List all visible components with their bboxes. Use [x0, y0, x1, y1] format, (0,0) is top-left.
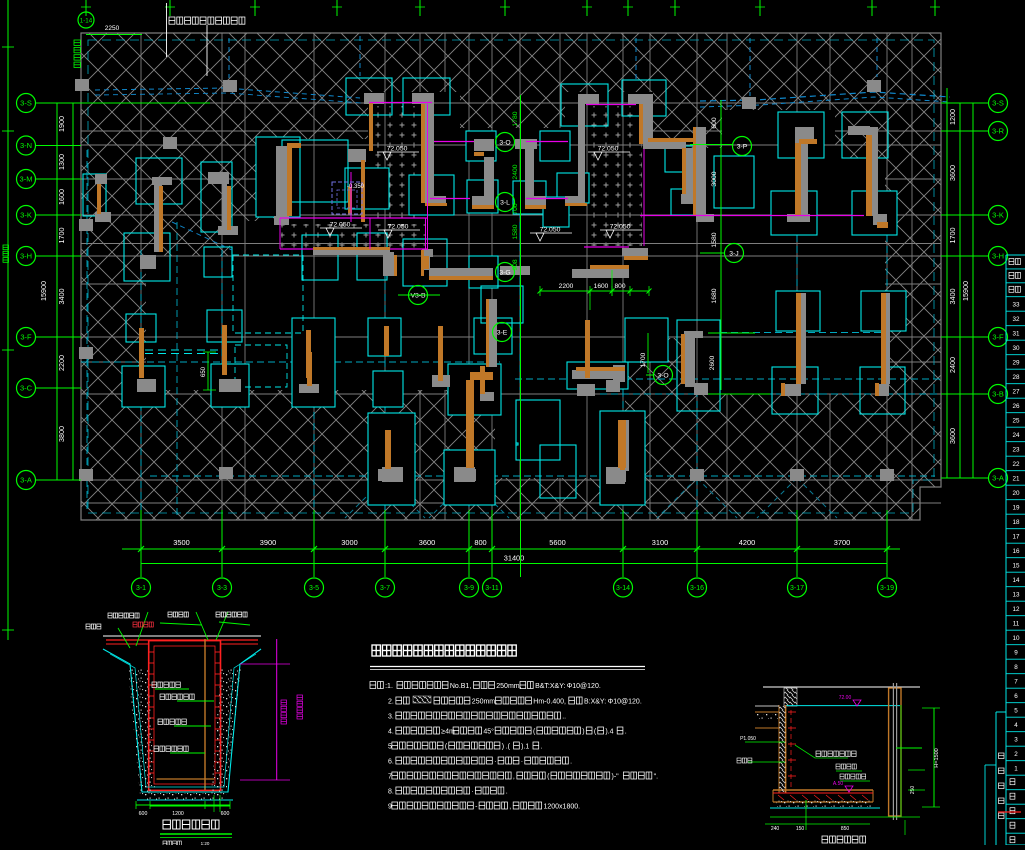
svg-text:150: 150	[796, 826, 805, 832]
svg-text:3-P: 3-P	[737, 144, 748, 151]
svg-text:3-B: 3-B	[992, 390, 1004, 399]
svg-text:23: 23	[1012, 447, 1020, 454]
svg-text:1580: 1580	[711, 232, 718, 247]
svg-text:3-N: 3-N	[20, 141, 32, 150]
svg-text:15900: 15900	[39, 281, 48, 301]
svg-text:Hm-0.400,: Hm-0.400,	[533, 699, 566, 706]
svg-text:3-9: 3-9	[464, 585, 474, 592]
svg-text:700: 700	[512, 203, 519, 215]
svg-text:72.050: 72.050	[330, 222, 351, 229]
svg-text:.(: .(	[506, 744, 511, 751]
svg-text:17: 17	[1012, 534, 1020, 541]
svg-text:3-7: 3-7	[380, 585, 390, 592]
svg-text:800: 800	[474, 538, 486, 547]
svg-text:32: 32	[1012, 316, 1020, 323]
svg-text:3400: 3400	[57, 289, 66, 305]
svg-text:3-G: 3-G	[499, 270, 510, 277]
svg-text:,: ,	[509, 804, 511, 811]
svg-text:).1: ).1	[521, 744, 529, 751]
svg-text:2250: 2250	[105, 25, 120, 32]
svg-text:1-14: 1-14	[80, 18, 93, 25]
svg-text:3-17: 3-17	[790, 585, 804, 592]
svg-text:27: 27	[1012, 389, 1020, 396]
svg-text:3-11: 3-11	[485, 585, 499, 592]
svg-text:1300: 1300	[57, 154, 66, 170]
svg-text:10: 10	[1012, 635, 1020, 642]
svg-text:2200: 2200	[559, 283, 574, 290]
svg-text:1: 1	[1014, 766, 1018, 773]
svg-text:31400: 31400	[504, 554, 525, 563]
svg-text:1600: 1600	[594, 283, 609, 290]
svg-text:3-5: 3-5	[309, 585, 319, 592]
svg-text:3700: 3700	[834, 538, 850, 547]
svg-text:2: 2	[1014, 751, 1018, 758]
svg-text:3-14: 3-14	[616, 585, 630, 592]
svg-text:1700: 1700	[640, 352, 647, 367]
svg-text:28: 28	[1012, 374, 1020, 381]
svg-text:650: 650	[201, 366, 207, 377]
svg-text:P1.050: P1.050	[740, 736, 756, 742]
svg-text:45°: 45°	[483, 728, 494, 736]
svg-text:B:X&Y:: B:X&Y:	[584, 699, 606, 706]
svg-text:7: 7	[388, 774, 392, 781]
svg-text:31: 31	[1012, 331, 1020, 338]
svg-text:3-J: 3-J	[729, 251, 738, 258]
svg-text:1600: 1600	[57, 189, 66, 205]
svg-text:250mm,: 250mm,	[496, 683, 521, 690]
svg-text:33: 33	[1012, 302, 1020, 309]
svg-text:850: 850	[841, 826, 850, 832]
svg-text:.: .	[570, 759, 572, 766]
svg-text:3-L: 3-L	[500, 200, 510, 207]
svg-text:21: 21	[1012, 476, 1020, 483]
svg-text:8: 8	[1014, 664, 1018, 671]
svg-text:2400: 2400	[948, 357, 957, 373]
svg-text:6.: 6.	[388, 759, 394, 766]
svg-text:11: 11	[1013, 621, 1020, 628]
svg-text:25: 25	[1012, 418, 1020, 425]
svg-text:3-O: 3-O	[657, 373, 668, 380]
svg-text:): )	[582, 729, 584, 736]
svg-text:3-3: 3-3	[217, 585, 227, 592]
svg-text:3-1: 3-1	[136, 585, 146, 592]
svg-text:4.: 4.	[388, 729, 394, 736]
svg-text:1:20: 1:20	[201, 841, 210, 845]
svg-text:600: 600	[221, 811, 230, 817]
svg-text:72.050: 72.050	[388, 224, 409, 231]
svg-text:3-E: 3-E	[497, 330, 508, 337]
svg-text:22: 22	[1012, 461, 1020, 468]
svg-text:3-F: 3-F	[20, 333, 32, 342]
svg-text:3-K: 3-K	[20, 211, 32, 220]
svg-text:24: 24	[1012, 432, 1020, 439]
svg-text:5: 5	[1014, 708, 1018, 715]
svg-text:Φ10@120.: Φ10@120.	[608, 699, 642, 706]
svg-text:V3-B: V3-B	[410, 293, 426, 300]
svg-text:18: 18	[1012, 519, 1020, 526]
svg-text:72.050: 72.050	[540, 227, 561, 234]
svg-text:800: 800	[614, 283, 625, 290]
svg-text::1.: :1.	[385, 683, 393, 690]
svg-text:3-H: 3-H	[992, 252, 1004, 261]
svg-text:3-K: 3-K	[992, 211, 1004, 220]
svg-text:3-19: 3-19	[880, 585, 894, 592]
svg-text:): )	[502, 744, 504, 751]
svg-text:3-16: 3-16	[690, 585, 704, 592]
svg-text:".: ".	[654, 774, 658, 781]
svg-text:1900: 1900	[57, 116, 66, 132]
svg-text:No.B1,: No.B1,	[450, 683, 471, 690]
svg-text:3-M: 3-M	[20, 175, 33, 184]
svg-text:1780: 1780	[512, 111, 519, 126]
svg-text:3-S: 3-S	[20, 99, 32, 108]
svg-text:3600: 3600	[948, 428, 957, 444]
svg-text:·: ·	[521, 759, 523, 766]
svg-text:14: 14	[1012, 577, 1020, 584]
svg-text:72.050: 72.050	[598, 146, 619, 153]
svg-text:250mm,: 250mm,	[472, 699, 497, 706]
svg-text:30: 30	[1012, 345, 1020, 352]
svg-text:Φ10@120.: Φ10@120.	[567, 683, 601, 690]
svg-text:600: 600	[711, 117, 718, 129]
svg-text:15900: 15900	[961, 281, 970, 301]
svg-text:2.: 2.	[388, 699, 394, 706]
svg-text:.: .	[506, 789, 508, 796]
svg-text:4200: 4200	[739, 538, 755, 547]
svg-text:3-H: 3-H	[20, 252, 32, 261]
svg-text:.: .	[625, 729, 627, 736]
svg-text:3900: 3900	[260, 538, 276, 547]
svg-text:600: 600	[139, 811, 148, 817]
svg-text:72.050: 72.050	[610, 224, 631, 231]
svg-text:2600: 2600	[709, 355, 716, 370]
svg-text:-0.350: -0.350	[347, 184, 365, 190]
svg-text:3-O: 3-O	[499, 140, 510, 147]
svg-text:1700: 1700	[948, 228, 957, 244]
svg-text:240: 240	[771, 826, 780, 832]
svg-text:908: 908	[512, 259, 519, 271]
svg-text:·: ·	[472, 789, 474, 796]
svg-text:1700: 1700	[57, 228, 66, 244]
svg-text:2400: 2400	[512, 164, 519, 179]
svg-text:3-C: 3-C	[20, 384, 33, 393]
svg-text:4: 4	[1014, 722, 1018, 729]
svg-text:8.: 8.	[388, 789, 394, 796]
svg-text:16: 16	[1012, 548, 1020, 555]
svg-text:3-R: 3-R	[992, 127, 1005, 136]
svg-text:)-": )-"	[612, 774, 620, 781]
svg-text:15: 15	[1012, 563, 1020, 570]
svg-text:5600: 5600	[549, 538, 565, 547]
svg-text:3-A: 3-A	[20, 476, 32, 485]
svg-text:29: 29	[1012, 360, 1020, 367]
svg-text:20: 20	[1012, 490, 1020, 497]
svg-text:3.: 3.	[388, 714, 394, 721]
svg-text:1200x1800.: 1200x1800.	[543, 804, 580, 811]
svg-text:1580: 1580	[512, 224, 519, 239]
svg-text:3500: 3500	[173, 538, 189, 547]
svg-text:..: ..	[562, 714, 566, 721]
svg-text:6: 6	[1014, 693, 1018, 700]
svg-text:26: 26	[1012, 403, 1020, 410]
svg-text:5: 5	[388, 744, 392, 751]
svg-text:1200: 1200	[172, 811, 184, 817]
svg-text:.: .	[541, 744, 543, 751]
svg-text:19: 19	[1012, 505, 1020, 512]
svg-text:9: 9	[1014, 650, 1018, 657]
svg-text:72.00: 72.00	[839, 695, 852, 701]
svg-text:B&T:X&Y:: B&T:X&Y:	[535, 683, 565, 690]
svg-text:13: 13	[1012, 592, 1020, 599]
svg-text:1200: 1200	[948, 109, 957, 125]
svg-text:12: 12	[1012, 606, 1020, 613]
svg-text:H=1500: H=1500	[934, 748, 940, 767]
svg-text:3000: 3000	[711, 171, 718, 186]
svg-text:3-F: 3-F	[992, 333, 1004, 342]
svg-text:3800: 3800	[57, 426, 66, 442]
svg-text:A.50: A.50	[833, 781, 844, 787]
svg-text:3600: 3600	[419, 538, 435, 547]
svg-text:3-A: 3-A	[992, 474, 1004, 483]
svg-text:3-S: 3-S	[992, 99, 1004, 108]
svg-text:7: 7	[1014, 679, 1018, 686]
svg-text:3400: 3400	[948, 289, 957, 305]
svg-text:3: 3	[1014, 737, 1018, 744]
svg-text:).4: ).4	[605, 729, 613, 736]
svg-text:9: 9	[388, 804, 392, 811]
svg-text:2200: 2200	[57, 355, 66, 371]
svg-text:1680: 1680	[711, 288, 718, 303]
svg-text:3100: 3100	[652, 538, 668, 547]
svg-text:·: ·	[494, 759, 496, 766]
svg-text:,: ,	[513, 774, 515, 781]
svg-text:3600: 3600	[948, 165, 957, 181]
svg-text:72.050: 72.050	[387, 146, 408, 153]
svg-text:3000: 3000	[341, 538, 357, 547]
